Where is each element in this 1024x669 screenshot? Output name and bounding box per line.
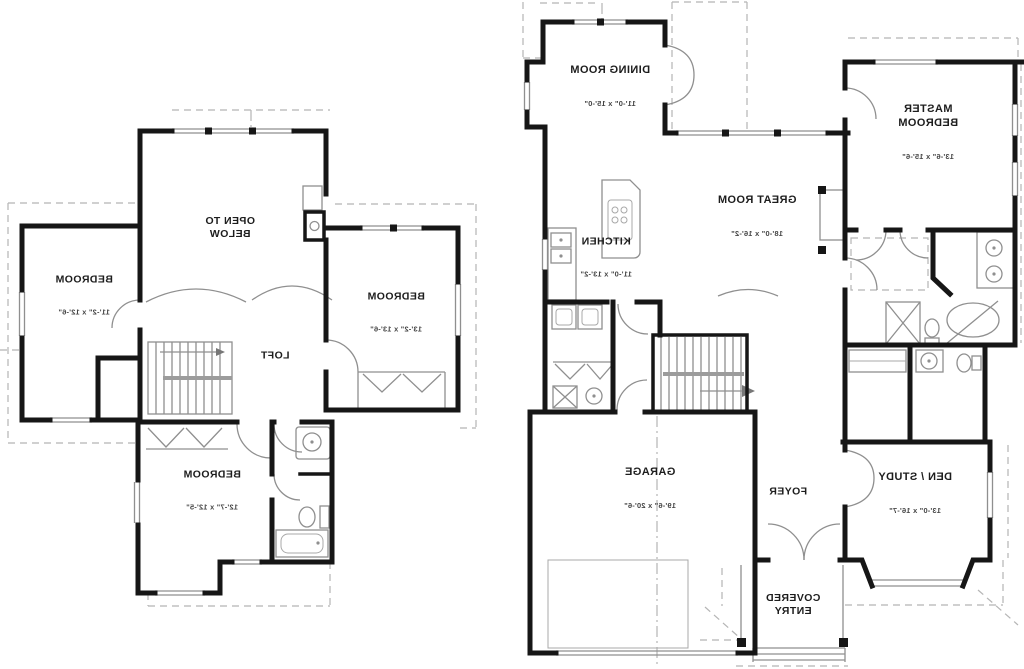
hall-powder-fixtures xyxy=(849,350,981,372)
room-dimensions: 13'-0" x 16'-7" xyxy=(878,506,952,515)
room-name: GREAT ROOM xyxy=(718,194,797,208)
laundry-powder-fixtures xyxy=(552,305,613,408)
room-name: BEDROOM xyxy=(183,468,241,481)
room-label-covered-entry: COVERED ENTRY xyxy=(766,572,821,638)
bathtub-icon xyxy=(947,303,999,337)
fireplace-icon xyxy=(818,186,845,254)
room-dimensions: 13'-2" x 13'-6" xyxy=(367,324,425,333)
room-label-garage: GARAGE 19'-6" x 20'-6" xyxy=(624,446,676,530)
room-label-bedroom-rear: BEDROOM 12'-7" x 12'-5" xyxy=(183,448,241,532)
staircase-down-icon xyxy=(661,337,755,410)
floor-plan-drawing xyxy=(0,0,1024,669)
room-dimensions: 19'-6" x 20'-6" xyxy=(624,501,676,510)
room-label-great-room: GREAT ROOM 18'-0" x 16'-2" xyxy=(718,174,797,258)
room-label-bedroom-left: BEDROOM 11'-2" x 12'-6" xyxy=(55,253,113,337)
room-name: OPEN TO BELOW xyxy=(205,215,255,241)
toilet-icon xyxy=(957,354,971,372)
staircase-up-icon xyxy=(148,342,232,414)
room-name: COVERED ENTRY xyxy=(766,592,821,618)
toilet-icon xyxy=(925,319,939,337)
upper-bath-fixtures xyxy=(276,427,330,557)
room-name: FOYER xyxy=(769,485,807,498)
room-name: DEN / STUDY xyxy=(878,471,952,485)
chimney-niche-icon xyxy=(303,186,324,240)
floor-plan-image: OPEN TO BELOW BEDROOM 11'-2" x 12'-6" BE… xyxy=(0,0,1024,669)
room-label-loft: LOFT xyxy=(260,329,289,382)
porch-post-icon xyxy=(839,638,848,647)
room-label-bedroom-right: BEDROOM 13'-2" x 13'-6" xyxy=(367,270,425,354)
room-label-open-to-below: OPEN TO BELOW xyxy=(205,195,255,261)
room-name: KITCHEN xyxy=(580,235,632,248)
roof-overhang-dashes xyxy=(0,2,1021,666)
garage-interior xyxy=(548,560,688,648)
room-dimensions: 11'-2" x 12'-6" xyxy=(55,307,113,316)
room-label-den-study: DEN / STUDY 13'-0" x 16'-7" xyxy=(878,451,952,535)
room-dimensions: 13'-6" x 15'-6" xyxy=(898,152,958,161)
room-dimensions: 12'-7" x 12'-5" xyxy=(183,502,241,511)
room-name: GARAGE xyxy=(624,466,676,480)
room-label-foyer: FOYER xyxy=(769,465,807,518)
entry-steps-icon xyxy=(753,648,845,662)
master-bath-fixtures xyxy=(886,232,1015,345)
room-label-master-bedroom: MASTER BEDROOM 13'-6" x 15'-6" xyxy=(898,83,958,181)
toilet-icon xyxy=(299,507,315,527)
room-label-kitchen: KITCHEN 11'-0" x 13'-2" xyxy=(580,215,632,299)
room-dimensions: 11'-0" x 15'-0" xyxy=(570,99,650,108)
room-name: MASTER BEDROOM xyxy=(898,103,958,131)
room-dimensions: 18'-0" x 16'-2" xyxy=(718,229,797,238)
porch-post-icon xyxy=(737,638,746,647)
room-dimensions: 11'-0" x 13'-2" xyxy=(580,269,632,278)
room-name: LOFT xyxy=(260,349,289,362)
room-label-dining-room: DINING ROOM 11'-0" x 15'-0" xyxy=(570,44,650,128)
room-name: DINING ROOM xyxy=(570,64,650,78)
room-name: BEDROOM xyxy=(367,290,425,303)
room-name: BEDROOM xyxy=(55,273,113,286)
